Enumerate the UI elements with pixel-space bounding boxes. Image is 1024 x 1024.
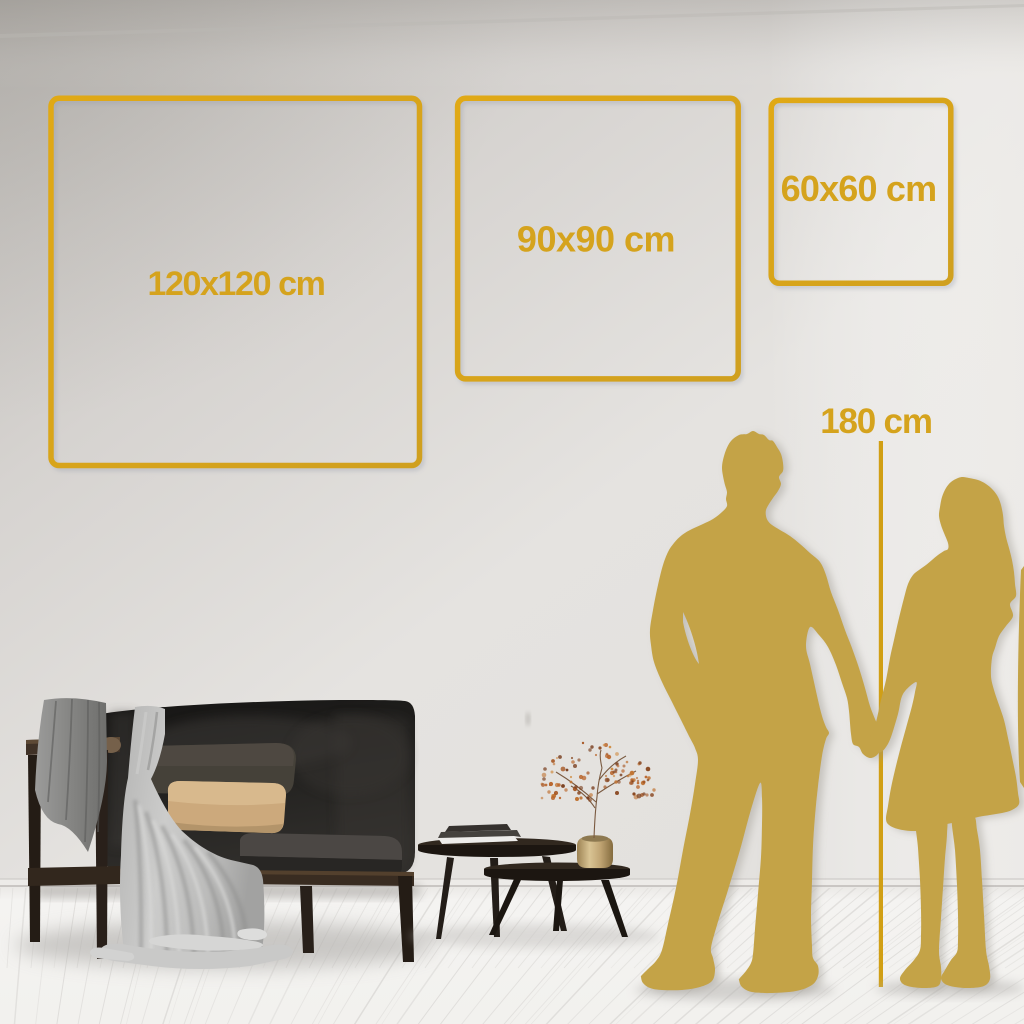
svg-text:180 cm: 180 cm — [820, 402, 932, 441]
svg-text:90x90 cm: 90x90 cm — [517, 219, 675, 260]
svg-text:60x60 cm: 60x60 cm — [781, 168, 937, 209]
svg-text:120x120 cm: 120x120 cm — [148, 265, 325, 303]
